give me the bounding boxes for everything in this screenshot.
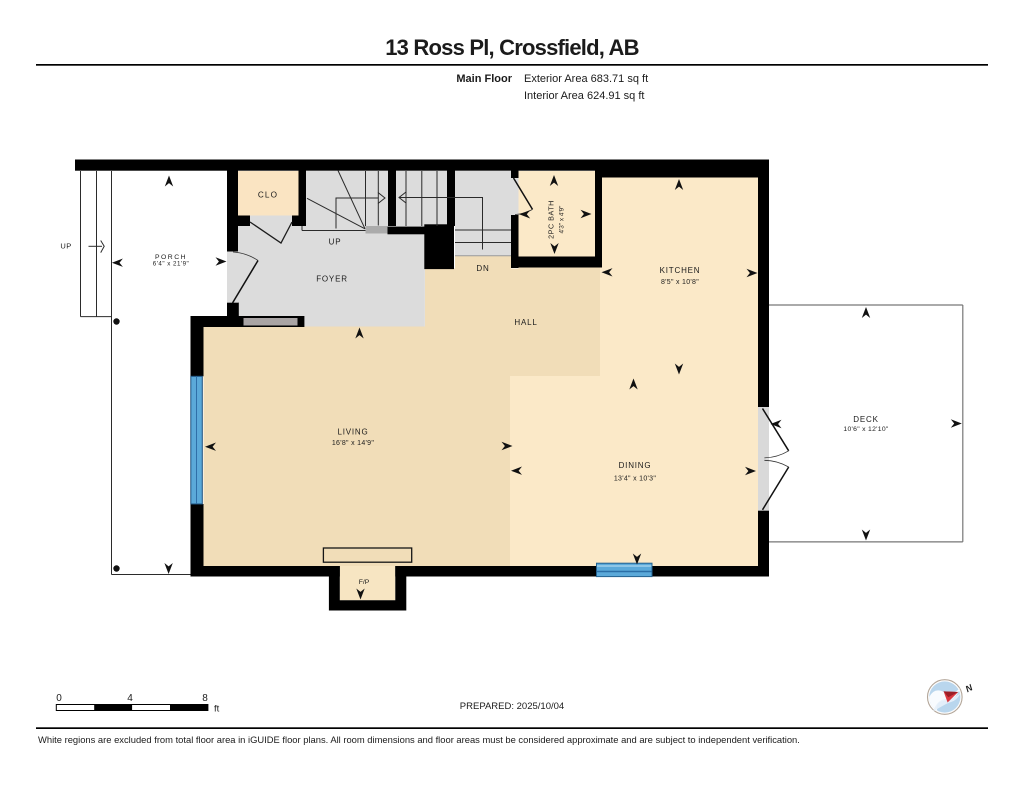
svg-text:8'5" x 10'8": 8'5" x 10'8" (661, 279, 699, 286)
svg-text:4: 4 (127, 693, 133, 704)
svg-text:FOYER: FOYER (316, 275, 348, 284)
svg-text:13 Ross Pl, Crossfield, AB: 13 Ross Pl, Crossfield, AB (385, 35, 638, 60)
svg-text:F/P: F/P (359, 579, 370, 586)
svg-text:UP: UP (60, 242, 71, 251)
svg-text:10'6" x 12'10": 10'6" x 12'10" (843, 426, 889, 433)
svg-text:HALL: HALL (514, 318, 537, 327)
svg-text:16'8" x 14'9": 16'8" x 14'9" (332, 440, 375, 447)
svg-text:UP: UP (329, 238, 342, 247)
svg-text:DINING: DINING (619, 461, 652, 470)
svg-text:Interior Area 624.91 sq ft: Interior Area 624.91 sq ft (524, 90, 644, 102)
svg-text:6'4" x 21'9": 6'4" x 21'9" (153, 261, 190, 268)
svg-text:13'4" x 10'3": 13'4" x 10'3" (614, 476, 657, 483)
svg-text:White regions are excluded fro: White regions are excluded from total fl… (38, 734, 800, 745)
svg-text:0: 0 (56, 693, 62, 704)
svg-text:KITCHEN: KITCHEN (660, 266, 701, 275)
svg-text:DN: DN (476, 264, 489, 273)
svg-text:8: 8 (202, 693, 208, 704)
svg-text:DECK: DECK (853, 415, 878, 424)
svg-text:Main Floor: Main Floor (456, 73, 512, 85)
svg-text:CLO: CLO (258, 191, 278, 200)
svg-text:4'3" x 4'9": 4'3" x 4'9" (559, 206, 566, 234)
svg-text:ft: ft (214, 704, 220, 715)
svg-text:2PC BATH: 2PC BATH (547, 200, 556, 239)
svg-text:Exterior Area 683.71 sq ft: Exterior Area 683.71 sq ft (524, 73, 648, 85)
svg-text:LIVING: LIVING (337, 428, 368, 437)
svg-text:PREPARED: 2025/10/04: PREPARED: 2025/10/04 (460, 701, 564, 712)
